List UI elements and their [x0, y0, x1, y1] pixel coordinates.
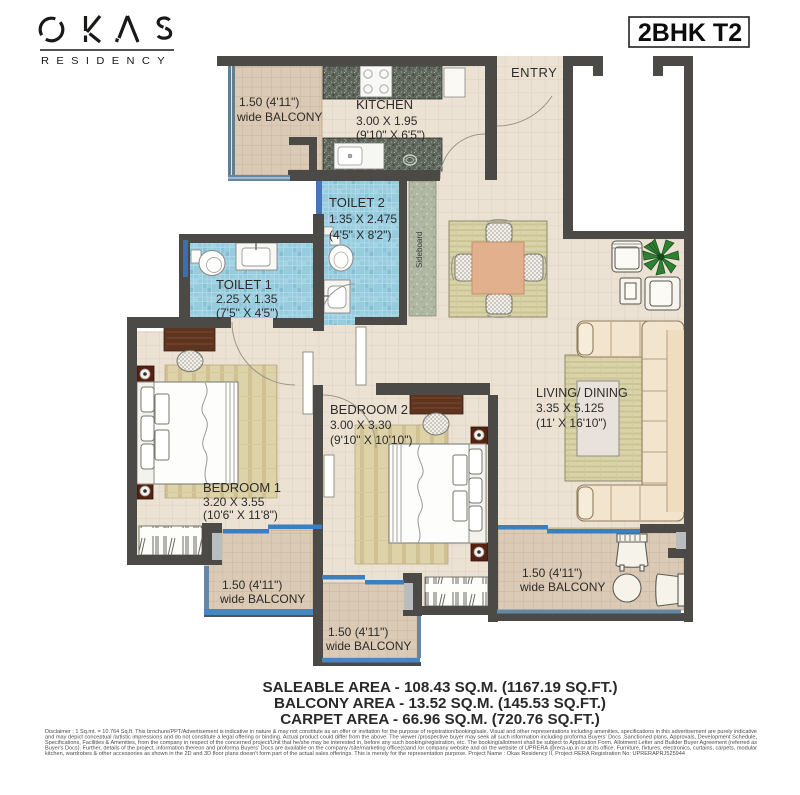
svg-text:wide BALCONY: wide BALCONY: [325, 639, 411, 653]
svg-text:TOILET 1: TOILET 1: [216, 277, 272, 292]
svg-text:CARPET AREA - 66.96 SQ.M. (720: CARPET AREA - 66.96 SQ.M. (720.76 SQ.FT.…: [280, 711, 600, 728]
svg-text:wide BALCONY: wide BALCONY: [519, 580, 605, 594]
svg-text:(9'10" X 10'10"): (9'10" X 10'10"): [330, 433, 412, 447]
svg-text:BEDROOM 2: BEDROOM 2: [330, 402, 408, 417]
svg-text:2BHK T2: 2BHK T2: [638, 19, 742, 47]
svg-text:ENTRY: ENTRY: [511, 65, 557, 80]
svg-text:Sideboard: Sideboard: [415, 232, 424, 268]
svg-text:TOILET 2: TOILET 2: [329, 195, 385, 210]
svg-text:(10'6" X 11'8"): (10'6" X 11'8"): [203, 508, 278, 522]
svg-text:1.50 (4'11"): 1.50 (4'11"): [328, 625, 388, 639]
svg-text:2.25 X 1.35: 2.25 X 1.35: [216, 292, 278, 306]
svg-text:1.50 (4'11"): 1.50 (4'11"): [222, 578, 282, 592]
svg-text:(7'5" X 4'5"): (7'5" X 4'5"): [216, 306, 278, 320]
svg-text:BEDROOM 1: BEDROOM 1: [203, 480, 281, 495]
svg-text:RESIDENCY: RESIDENCY: [41, 55, 172, 67]
svg-text:BALCONY AREA - 13.52 SQ.M. (14: BALCONY AREA - 13.52 SQ.M. (145.53 SQ.FT…: [274, 695, 606, 712]
svg-text:3.20 X 3.55: 3.20 X 3.55: [203, 495, 265, 509]
svg-text:1.50 (4'11"): 1.50 (4'11"): [522, 566, 582, 580]
svg-text:LIVING/ DINING: LIVING/ DINING: [536, 386, 628, 400]
svg-text:3.00 X 3.30: 3.00 X 3.30: [330, 418, 392, 432]
svg-text:(4'5" X 8'2"): (4'5" X 8'2"): [329, 228, 391, 242]
svg-text:wide BALCONY: wide BALCONY: [219, 592, 305, 606]
svg-text:(11' X 16'10"): (11' X 16'10"): [536, 416, 607, 430]
svg-text:kitchen, wardrobes & other acc: kitchen, wardrobes & other accessories a…: [45, 751, 685, 757]
svg-text:wide BALCONY: wide BALCONY: [236, 110, 322, 124]
svg-text:1.35 X 2.475: 1.35 X 2.475: [329, 212, 397, 226]
svg-text:(9'10" X 6'5"): (9'10" X 6'5"): [356, 128, 425, 142]
svg-text:3.35 X 5.125: 3.35 X 5.125: [536, 401, 604, 415]
svg-text:1.50 (4'11"): 1.50 (4'11"): [239, 95, 299, 109]
svg-text:KITCHEN: KITCHEN: [356, 97, 413, 112]
svg-text:SALEABLE AREA - 108.43 SQ.M. (: SALEABLE AREA - 108.43 SQ.M. (1167.19 SQ…: [262, 679, 617, 696]
svg-text:3.00 X 1.95: 3.00 X 1.95: [356, 114, 418, 128]
